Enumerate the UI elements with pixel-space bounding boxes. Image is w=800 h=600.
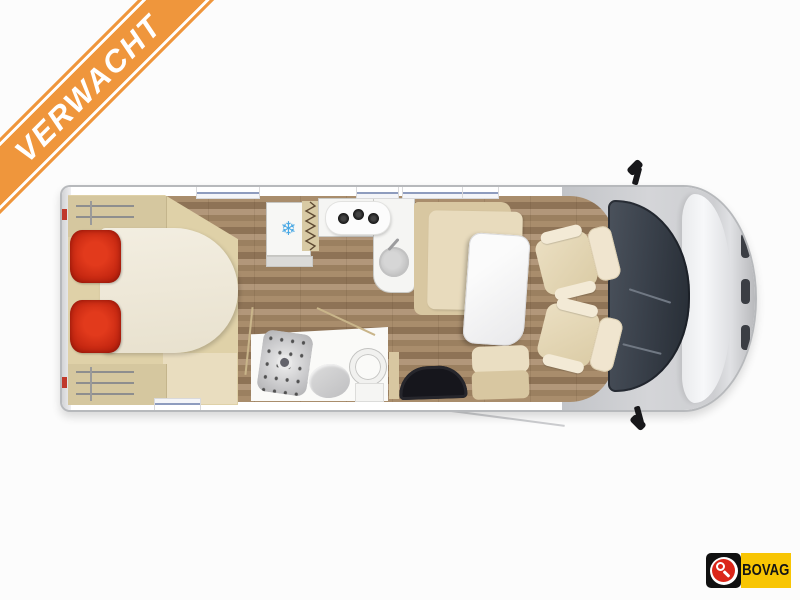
zigzag-icon: [302, 201, 319, 251]
hanging-rails-icon: [76, 205, 134, 225]
motorhome-body: ❄: [60, 185, 757, 412]
wiper-icon: [629, 288, 671, 303]
bovag-badge: BOVAG: [706, 553, 791, 588]
dinette-table: [462, 232, 531, 347]
listing-image: ❄: [0, 0, 800, 600]
washbasin: [350, 349, 386, 385]
wiper-icon: [622, 343, 661, 355]
taillight-icon: [62, 377, 67, 388]
hob-3-burner: [326, 202, 390, 234]
mirror-top-icon: [626, 159, 644, 177]
grille-slot-icon: [741, 325, 750, 350]
shower-tray: [256, 329, 314, 397]
bovag-logo-disc: [712, 559, 735, 582]
burner-icon: [338, 213, 349, 224]
window-top: [462, 187, 499, 199]
bovag-label: BOVAG: [742, 562, 789, 580]
pillow: [70, 230, 121, 283]
magnifier-handle: [723, 570, 731, 578]
window-top: [196, 187, 260, 199]
window-top: [402, 187, 469, 199]
shower-drain-icon: [279, 357, 289, 367]
grille-slot-icon: [741, 233, 750, 258]
bovag-logo-ring: [710, 557, 738, 585]
hanging-rails-icon: [76, 371, 134, 399]
kitchen-divider: [302, 201, 319, 251]
bed-step-bottom: [163, 353, 237, 404]
entry-door-pillar: [389, 352, 399, 399]
burner-icon: [353, 209, 364, 220]
fridge-ledge: [266, 256, 313, 267]
snowflake-icon: ❄: [281, 220, 297, 239]
taillight-icon: [62, 209, 67, 220]
window-top: [356, 187, 399, 199]
grille-slot-icon: [741, 279, 750, 304]
mirror-bottom-icon: [629, 414, 647, 432]
ribbon-label: VERWACHT: [9, 9, 167, 167]
pillow: [70, 300, 121, 353]
bovag-label-panel: BOVAG: [741, 553, 791, 588]
bovag-logo-icon: [706, 553, 741, 588]
window-bottom: [154, 398, 201, 410]
wardrobe-cabinet-bottom: [68, 364, 167, 405]
burner-icon: [368, 213, 379, 224]
side-seat-cushion: [472, 370, 530, 400]
washbasin-pedestal: [355, 383, 384, 402]
kitchen-sink: [379, 247, 409, 277]
